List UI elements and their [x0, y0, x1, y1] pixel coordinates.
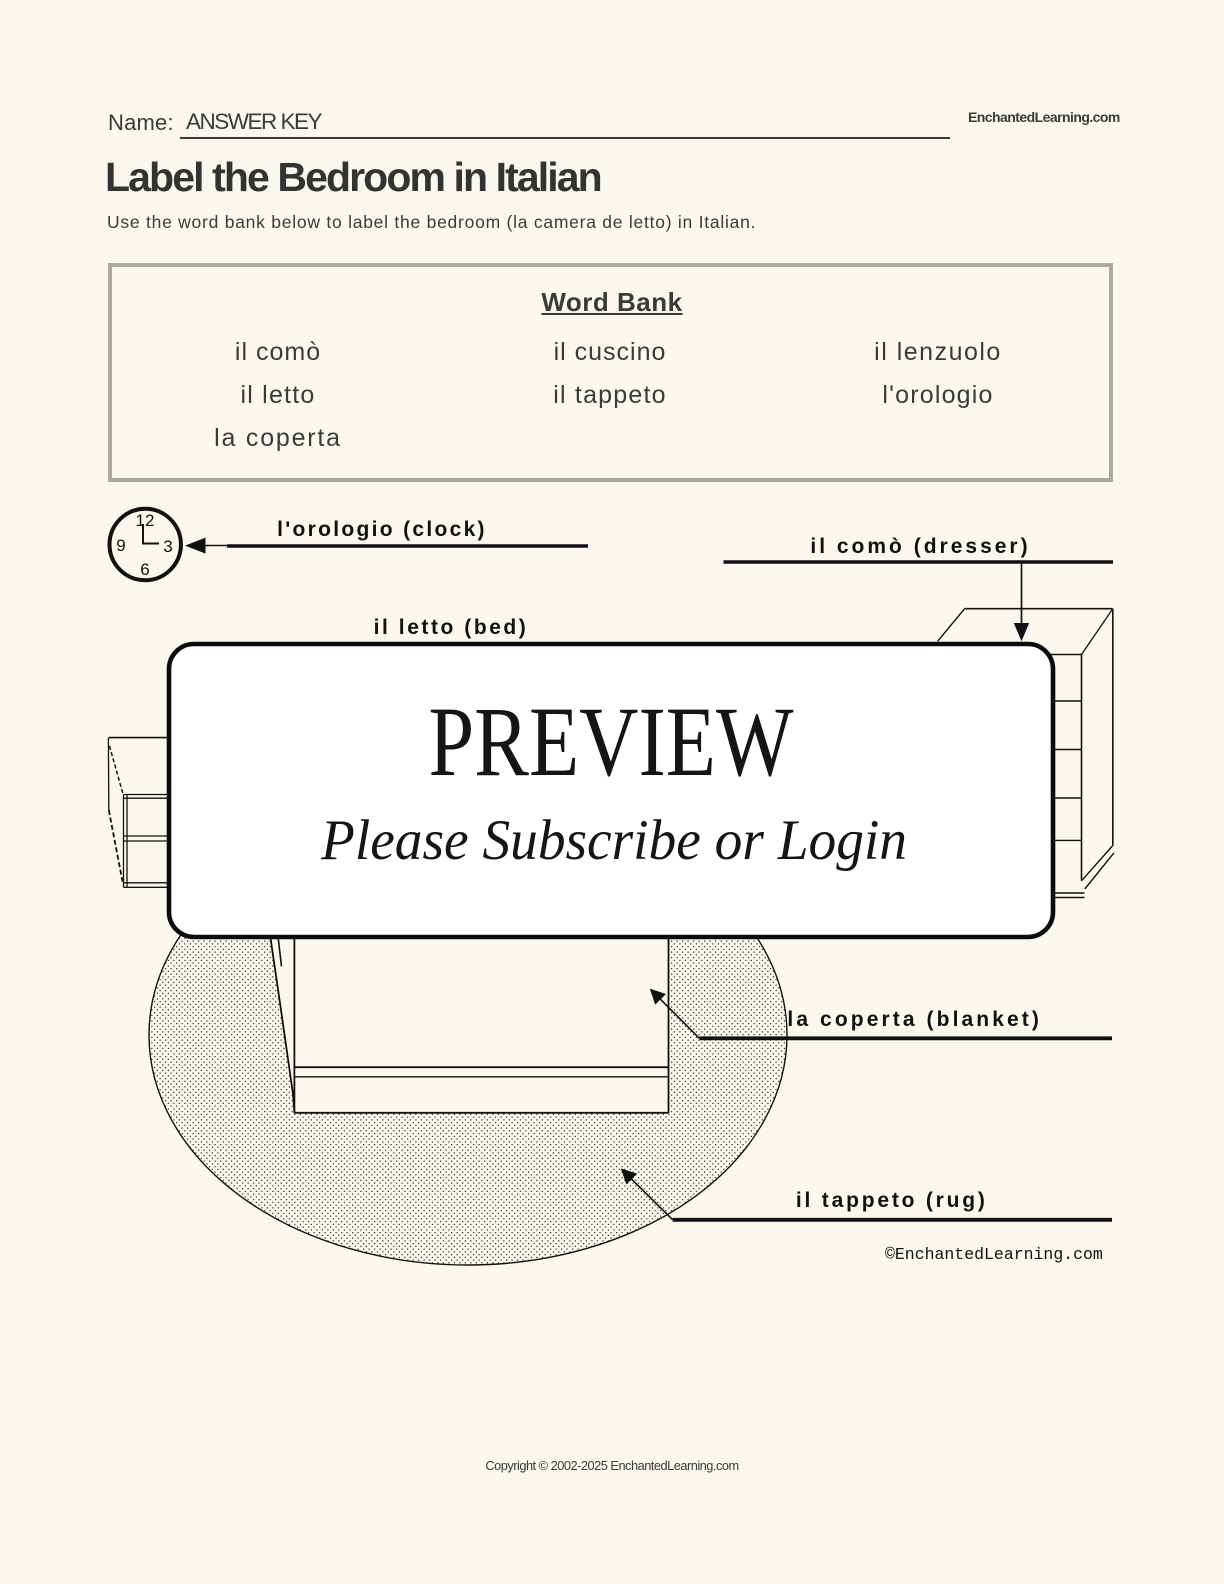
svg-text:6: 6 — [140, 560, 149, 579]
svg-text:9: 9 — [116, 536, 125, 555]
svg-text:il comò (dresser): il comò (dresser) — [810, 535, 1030, 558]
svg-text:12: 12 — [136, 511, 155, 530]
svg-text:la coperta (blanket): la coperta (blanket) — [787, 1008, 1042, 1031]
svg-text:PREVIEW: PREVIEW — [429, 686, 795, 797]
svg-text:il tappeto (rug): il tappeto (rug) — [796, 1189, 988, 1212]
svg-text:Please Subscribe or Login: Please Subscribe or Login — [320, 809, 907, 872]
svg-text:©EnchantedLearning.com: ©EnchantedLearning.com — [885, 1245, 1103, 1264]
svg-text:l'orologio (clock): l'orologio (clock) — [277, 518, 487, 541]
svg-text:3: 3 — [163, 537, 172, 556]
svg-text:il letto (bed): il letto (bed) — [374, 616, 529, 639]
